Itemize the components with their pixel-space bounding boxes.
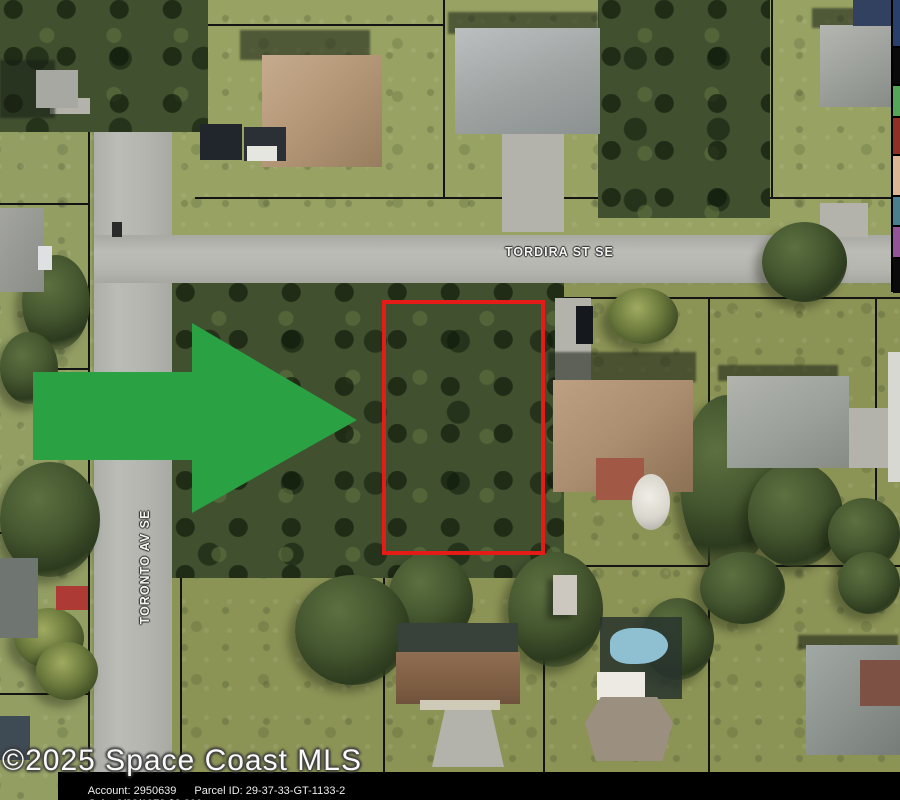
carport-car: [200, 124, 242, 160]
legend-swatch: [893, 0, 900, 46]
legend-swatch: [893, 227, 900, 257]
house-roof: [727, 376, 849, 468]
house-roof: [820, 25, 895, 107]
legend-swatch: [893, 86, 900, 116]
tree-canopy: [700, 552, 785, 624]
spa-pool: [632, 474, 670, 530]
flat-roof: [398, 623, 518, 655]
legend-swatch: [893, 156, 900, 195]
tree-canopy: [295, 575, 410, 685]
tree-canopy: [608, 288, 678, 344]
house-roof: [455, 28, 600, 134]
footer-parcel-id: Parcel ID: 29-37-33-GT-1133-2: [194, 785, 345, 797]
pointer-arrow: [33, 321, 359, 515]
legend-swatch: [893, 118, 900, 154]
tree-canopy: [748, 462, 843, 567]
legend-swatch: [893, 48, 900, 84]
legend-swatch-strip: [891, 0, 900, 292]
parked-car: [38, 246, 52, 270]
parcel-line: [0, 203, 88, 205]
pool-house-roof: [597, 672, 645, 700]
footer-line-2: Sale: 8/22/1972 $3,200: [70, 786, 202, 800]
pointer-arrow-shape: [33, 323, 357, 513]
woods-north: [598, 0, 770, 218]
mls-watermark: ©2025 Space Coast MLS: [2, 744, 362, 778]
outbuilding: [860, 660, 900, 706]
legend-swatch: [893, 197, 900, 225]
parcel-line: [443, 0, 445, 197]
house-roof: [396, 652, 520, 704]
tree-canopy: [762, 222, 847, 302]
tree-canopy: [838, 552, 900, 614]
legend-swatch: [893, 259, 900, 293]
mailbox: [112, 222, 122, 237]
garage-door: [247, 146, 277, 161]
driveway: [502, 133, 564, 232]
parcel-line: [771, 0, 773, 199]
aerial-map: TORDIRA ST SE TORONTO AV SE ©2025 Space …: [0, 0, 900, 800]
shed: [553, 575, 577, 615]
building-partial: [888, 352, 900, 482]
street-label-toronto: TORONTO AV SE: [138, 510, 152, 625]
parcel-line: [188, 24, 443, 26]
house-wall: [420, 700, 500, 710]
house-roof: [36, 70, 78, 108]
red-shed: [56, 586, 88, 610]
parked-truck: [576, 306, 593, 344]
house-shadow: [548, 352, 696, 382]
paver-patio: [585, 697, 673, 761]
street-label-tordira: TORDIRA ST SE: [505, 245, 614, 259]
boat-tarp: [853, 0, 893, 26]
house-roof: [0, 558, 38, 638]
subject-parcel-outline: [382, 300, 545, 555]
tree-canopy: [36, 642, 98, 700]
